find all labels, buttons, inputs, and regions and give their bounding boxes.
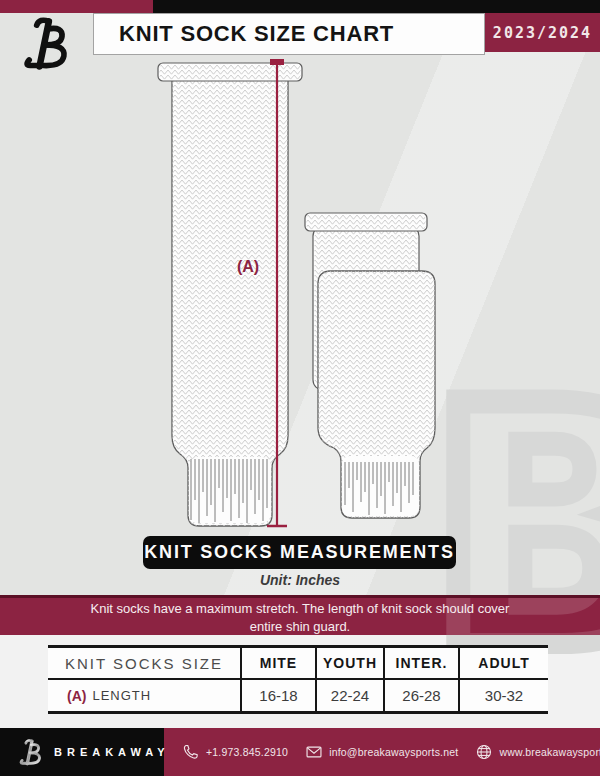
footer-contacts: +1.973.845.2910 info@breakawaysports.net… <box>164 728 600 776</box>
col-youth: YOUTH <box>323 655 377 671</box>
mail-icon <box>305 743 323 761</box>
sock-front <box>318 271 435 518</box>
measure-label-a: (A) <box>237 258 259 275</box>
col-mite: MITE <box>260 655 297 671</box>
phone-contact[interactable]: +1.973.845.2910 <box>182 743 288 761</box>
size-table-header-row: KNIT SOCKS SIZE MITE YOUTH INTER. ADULT <box>48 648 548 680</box>
footer-brand: BREAKAWAY <box>0 728 164 776</box>
measurements-banner: KNIT SOCKS MEASUREMENTS <box>143 536 456 569</box>
col-adult: ADULT <box>478 655 529 671</box>
size-table: KNIT SOCKS SIZE MITE YOUTH INTER. ADULT … <box>48 645 548 714</box>
page-title-bar: KNIT SOCK SIZE CHART <box>93 13 485 55</box>
length-mite: 16-18 <box>259 687 297 704</box>
notice-line-1: Knit socks have a maximum stretch. The l… <box>0 600 600 618</box>
phone-icon <box>182 743 200 761</box>
length-inter: 26-28 <box>402 687 440 704</box>
email-contact[interactable]: info@breakawaysports.net <box>305 743 458 761</box>
measurements-banner-title: KNIT SOCKS MEASUREMENTS <box>144 542 454 563</box>
notice-line-2: entire shin guard. <box>0 618 600 635</box>
top-strip-black <box>153 0 600 13</box>
size-table-title: KNIT SOCKS SIZE <box>65 655 223 672</box>
row-measure-key: (A) <box>67 688 86 704</box>
footer: BREAKAWAY +1.973.845.2910 info@breakaway… <box>0 728 600 776</box>
season-label: 2023/2024 <box>493 24 592 42</box>
length-adult: 30-32 <box>485 687 523 704</box>
length-youth: 22-24 <box>331 687 369 704</box>
phone-number: +1.973.845.2910 <box>206 746 288 758</box>
top-strip-maroon <box>0 0 153 13</box>
sock-large <box>158 63 302 526</box>
length-row: (A) LENGTH 16-18 22-24 26-28 30-32 <box>48 680 548 711</box>
col-inter: INTER. <box>396 655 448 671</box>
website-contact[interactable]: www.breakawaysports.net <box>475 743 600 761</box>
season-badge: 2023/2024 <box>485 13 600 52</box>
brand-logo-footer-icon <box>16 737 46 767</box>
sock-diagram: (A) <box>140 52 460 538</box>
email-address: info@breakawaysports.net <box>329 746 458 758</box>
page-title: KNIT SOCK SIZE CHART <box>119 21 394 47</box>
row-measure-label: LENGTH <box>92 688 151 703</box>
website-url: www.breakawaysports.net <box>499 746 600 758</box>
brand-name: BREAKAWAY <box>54 746 170 758</box>
globe-icon <box>475 743 493 761</box>
brand-logo-icon <box>16 13 78 73</box>
unit-note: Unit: Inches <box>0 571 600 589</box>
stretch-notice-banner: B Knit socks have a maximum stretch. The… <box>0 595 600 635</box>
